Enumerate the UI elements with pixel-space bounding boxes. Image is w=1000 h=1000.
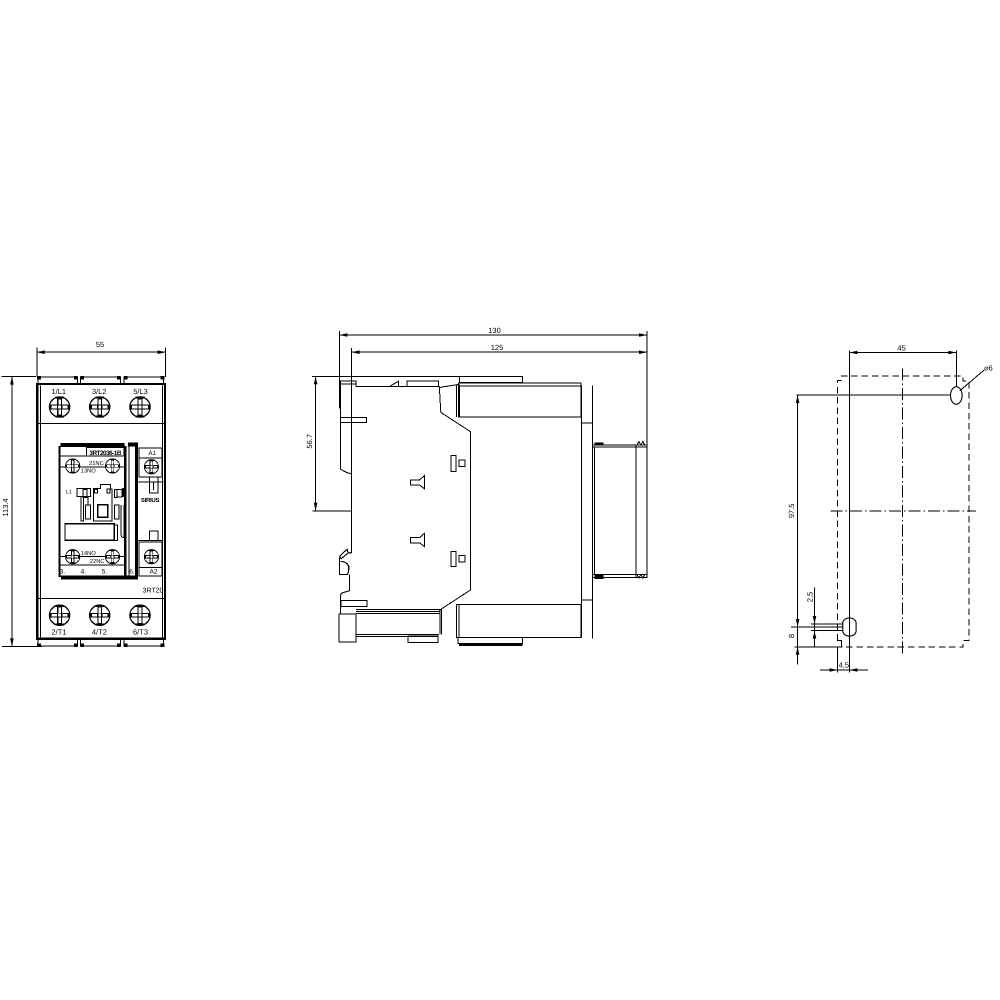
svg-text:4/T2: 4/T2 (92, 628, 107, 637)
svg-text:45: 45 (897, 343, 905, 352)
svg-text:L1: L1 (66, 490, 72, 496)
svg-text:2,5: 2,5 (806, 592, 815, 602)
svg-text:5/L3: 5/L3 (133, 387, 148, 396)
svg-text:14NO: 14NO (81, 550, 97, 557)
svg-text:3/L2: 3/L2 (92, 387, 107, 396)
svg-text:3RT20: 3RT20 (143, 587, 164, 594)
svg-text:2/T1: 2/T1 (51, 628, 66, 637)
svg-text:21NC: 21NC (89, 460, 104, 467)
svg-text:97.5: 97.5 (787, 503, 796, 518)
svg-text:22NC: 22NC (90, 558, 105, 565)
svg-text:A2: A2 (150, 568, 158, 575)
svg-text:130: 130 (488, 326, 501, 335)
svg-text:⌀6: ⌀6 (984, 363, 993, 372)
svg-text:6/T3: 6/T3 (133, 628, 148, 637)
svg-text:A1: A1 (148, 450, 156, 457)
svg-text:4.: 4. (81, 568, 87, 575)
svg-text:55: 55 (96, 340, 104, 349)
svg-text:1/L1: 1/L1 (51, 387, 66, 396)
svg-text:113.4: 113.4 (1, 498, 10, 516)
svg-text:13NO: 13NO (81, 467, 97, 474)
svg-text:125: 125 (491, 343, 504, 352)
svg-text:3.: 3. (60, 568, 66, 575)
svg-text:8: 8 (787, 634, 796, 638)
svg-text:6.: 6. (129, 568, 135, 575)
svg-text:SIRIUS: SIRIUS (141, 497, 160, 504)
svg-text:56.7: 56.7 (305, 434, 314, 449)
svg-text:4,5: 4,5 (839, 661, 849, 670)
svg-text:5.: 5. (102, 568, 108, 575)
